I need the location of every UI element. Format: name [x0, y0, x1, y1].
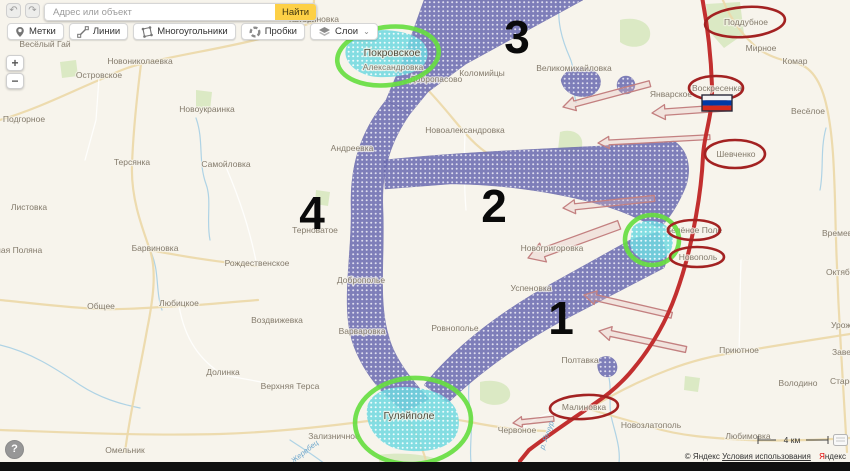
- map-label: Приютное: [719, 345, 759, 355]
- map-label: Комар: [783, 56, 808, 66]
- attribution: © Яндекс Условия использования Яндекс: [685, 452, 846, 461]
- map-label: Червоное: [498, 425, 537, 435]
- map-label: Покровское: [364, 47, 421, 59]
- chevron-down-icon: ⌄: [363, 27, 370, 36]
- search-input[interactable]: [45, 4, 275, 20]
- search-bar: ↶ ↷ Найти: [6, 3, 317, 21]
- zoom-out-button[interactable]: −: [6, 73, 24, 89]
- undo-button[interactable]: ↶: [6, 3, 21, 18]
- map-label: Подгорное: [3, 114, 45, 124]
- map-label: Новозлатополь: [621, 420, 682, 430]
- help-button[interactable]: ?: [5, 440, 24, 459]
- map-label: Барвиновка: [132, 243, 179, 253]
- map-label: Малиновка: [562, 402, 606, 412]
- terms-link[interactable]: Условия использования: [722, 452, 811, 461]
- scale-widget[interactable]: [834, 435, 848, 446]
- map-label: Общее: [87, 301, 115, 311]
- map-label: Рождественское: [225, 258, 290, 268]
- redo-button[interactable]: ↷: [25, 3, 40, 18]
- polygon-icon: [141, 26, 153, 38]
- map-label: Александровка: [363, 62, 424, 72]
- polygons-button[interactable]: Многоугольники: [133, 23, 235, 40]
- map-label: Володино: [779, 378, 818, 388]
- map-label: Верхняя Терса: [261, 381, 320, 391]
- map-label: Весёлый Гай: [19, 39, 70, 49]
- map-label: Ясная Поляна: [0, 245, 42, 255]
- map-label: Поддубное: [724, 17, 768, 27]
- zoom-controls: + −: [6, 55, 24, 89]
- map-label: Омельник: [105, 445, 145, 455]
- copyright-text: © Яндекс: [685, 452, 720, 461]
- map-label: Весёлое: [791, 106, 825, 116]
- polygons-label: Многоугольники: [157, 26, 227, 37]
- layers-button[interactable]: Слои ⌄: [310, 23, 378, 40]
- map-stage: КатериновкаЛивадноеВесёлый ГайНовоникола…: [0, 0, 850, 471]
- map-label: Зализничное: [308, 431, 360, 441]
- zoom-in-button[interactable]: +: [6, 55, 24, 71]
- map-label: Урожайное: [831, 320, 850, 330]
- map-label: Андреевка: [331, 143, 374, 153]
- lines-button[interactable]: Линии: [69, 23, 128, 40]
- map-label: Новониколаевка: [107, 56, 173, 66]
- map-label: Полтавка: [561, 355, 599, 365]
- map-label: Шевченко: [716, 149, 755, 159]
- map-label: Новополь: [679, 252, 718, 262]
- map-label: Январское: [650, 89, 692, 99]
- layers-icon: [318, 26, 331, 38]
- placemarks-label: Метки: [29, 26, 56, 37]
- bottom-bar: [0, 462, 850, 471]
- placemarks-button[interactable]: Метки: [7, 23, 64, 40]
- map-label: Новоукраинка: [179, 104, 235, 114]
- tools-row: Метки Линии Многоугольники Пробки Слои ⌄: [7, 23, 378, 40]
- yandex-logo[interactable]: Яндекс: [819, 452, 846, 461]
- map-label: Великомихайловка: [536, 63, 612, 73]
- map-label: Воздвижевка: [251, 315, 303, 325]
- search-button[interactable]: Найти: [275, 4, 316, 20]
- map-label: Времевка: [822, 228, 850, 238]
- zone-number: 2: [481, 180, 507, 232]
- line-icon: [77, 26, 89, 38]
- map-label: Варваровка: [339, 326, 386, 336]
- layers-label: Слои: [335, 26, 358, 37]
- map-label: Воскресенка: [692, 83, 742, 93]
- map-label: Самойловка: [201, 159, 250, 169]
- map-label: Заветное: [832, 347, 850, 357]
- map-label: Новоалександровка: [425, 125, 505, 135]
- map-label: Мирное: [746, 43, 777, 53]
- scale-label: 4 км: [784, 435, 801, 445]
- map-label: Коломийцы: [459, 68, 505, 78]
- zone-number: 3: [504, 11, 530, 63]
- map-label: Гуляйполе: [384, 410, 435, 422]
- map-label: Доброполье: [337, 275, 385, 285]
- traffic-button[interactable]: Пробки: [241, 23, 305, 40]
- zone-number: 4: [299, 187, 325, 239]
- map-label: Терсянка: [114, 157, 151, 167]
- advance-patch-poltavka: [598, 356, 617, 376]
- map-label: Успеновка: [511, 283, 552, 293]
- pin-icon: [15, 26, 25, 38]
- traffic-icon: [249, 26, 261, 38]
- map-label: Листовка: [11, 202, 48, 212]
- zone-number: 1: [548, 292, 574, 344]
- map-label: Новогригоровка: [521, 243, 584, 253]
- map-label: Октябрьское: [826, 267, 850, 277]
- map-label: Островское: [76, 70, 122, 80]
- map-label: Старомлиновка: [830, 376, 850, 386]
- undo-icon: ↶: [9, 5, 17, 16]
- map-label: Любицкое: [159, 298, 199, 308]
- redo-icon: ↷: [28, 5, 36, 16]
- map-canvas[interactable]: КатериновкаЛивадноеВесёлый ГайНовоникола…: [0, 0, 850, 471]
- traffic-label: Пробки: [265, 26, 297, 37]
- map-label: Долинка: [206, 367, 240, 377]
- russia-flag-icon: [702, 95, 732, 111]
- lines-label: Линии: [93, 26, 120, 37]
- map-label: Ровнополье: [431, 323, 478, 333]
